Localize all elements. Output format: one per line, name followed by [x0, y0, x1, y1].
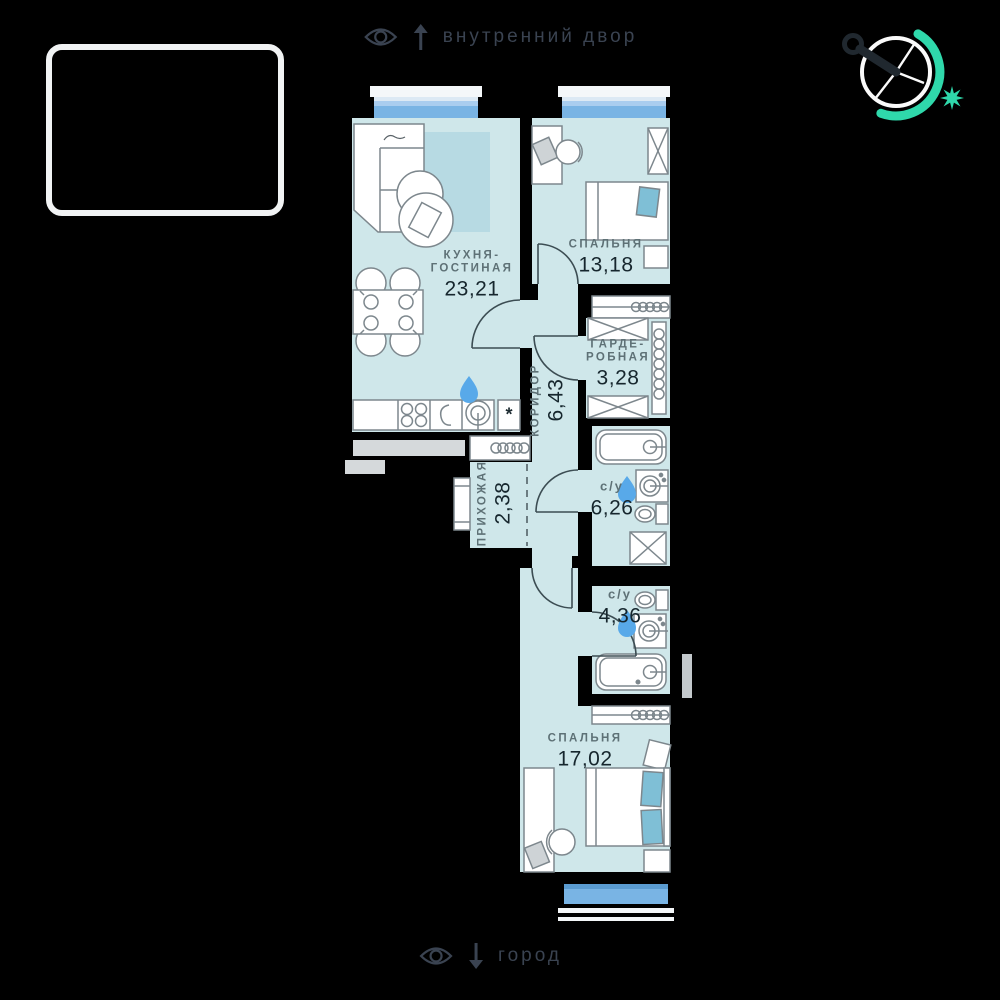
room-name: КОРИДОР — [529, 363, 542, 437]
nightstand — [644, 850, 670, 872]
floor-plan-page: внутренний двор город — [0, 0, 1000, 1000]
room-label-bathroom-2: с/у 4,36 — [599, 587, 642, 628]
headboard — [664, 768, 670, 846]
toilet — [635, 506, 655, 522]
room-area: 3,28 — [586, 367, 650, 391]
pillow — [641, 809, 663, 844]
room-label-bedroom-2: СПАЛЬНЯ 17,02 — [548, 732, 623, 771]
chair — [549, 829, 575, 855]
room-name: с/у — [591, 479, 634, 494]
pillow — [641, 771, 663, 806]
room-area: 6,26 — [591, 496, 634, 520]
room-label-bedroom-1: СПАЛЬНЯ 13,18 — [569, 238, 644, 277]
window-frame — [558, 86, 670, 97]
window-frame — [558, 908, 674, 913]
toilet-tank — [656, 590, 668, 610]
chair — [556, 140, 580, 164]
dining-table — [353, 290, 423, 334]
room-name: СПАЛЬНЯ — [548, 732, 623, 745]
room-label-hallway: ПРИХОЖАЯ 2,38 — [476, 460, 515, 547]
pillow — [636, 187, 659, 217]
room-name: ПРИХОЖАЯ — [476, 460, 489, 547]
window-frame — [370, 86, 482, 97]
toilet-tank — [656, 504, 668, 524]
room-area: 17,02 — [548, 748, 623, 772]
room-label-bathroom-1: с/у 6,26 — [591, 479, 634, 520]
room-label-wardrobe: ГАРДЕ- РОБНАЯ 3,28 — [586, 339, 650, 392]
room-area: 23,21 — [431, 278, 514, 302]
room-area: 2,38 — [492, 460, 516, 547]
room-area: 13,18 — [569, 254, 644, 278]
room-area: 4,36 — [599, 604, 642, 628]
room-label-corridor: КОРИДОР 6,43 — [529, 363, 568, 437]
room-name: с/у — [599, 587, 642, 602]
nightstand — [644, 246, 668, 268]
room-name: СПАЛЬНЯ — [569, 238, 644, 251]
room-label-kitchen-living: КУХНЯ- ГОСТИНАЯ 23,21 — [431, 250, 514, 303]
room-name: КУХНЯ- ГОСТИНАЯ — [431, 250, 514, 276]
room-area: 6,43 — [545, 363, 569, 437]
room-name: ГАРДЕ- РОБНАЯ — [586, 339, 650, 365]
fridge-symbol: * — [505, 405, 512, 426]
closet — [470, 436, 530, 460]
